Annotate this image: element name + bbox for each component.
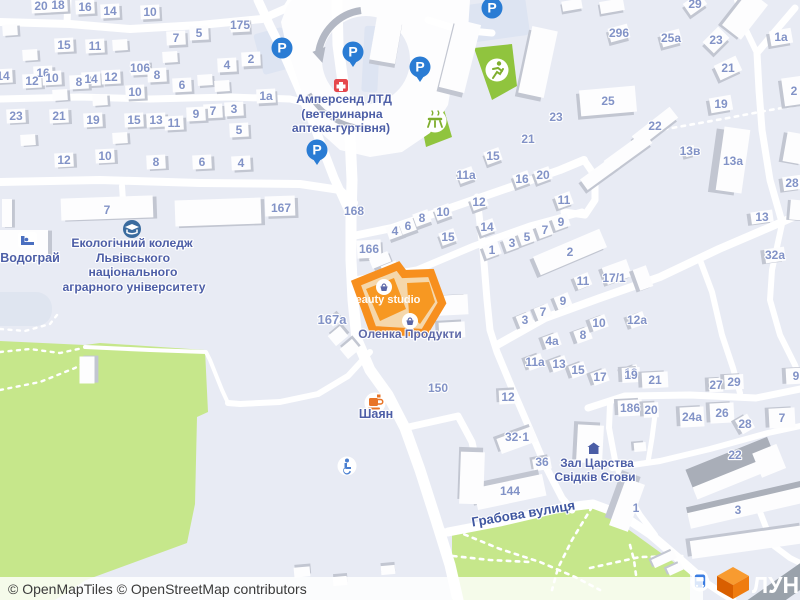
svg-text:15: 15 bbox=[571, 363, 585, 377]
svg-text:4: 4 bbox=[224, 58, 231, 72]
svg-text:14: 14 bbox=[480, 220, 494, 234]
svg-text:1: 1 bbox=[633, 501, 640, 515]
svg-text:10: 10 bbox=[128, 85, 142, 99]
svg-text:2: 2 bbox=[791, 84, 798, 98]
svg-text:3: 3 bbox=[522, 313, 529, 327]
svg-text:6: 6 bbox=[405, 219, 412, 233]
svg-text:7: 7 bbox=[104, 203, 111, 217]
svg-text:3: 3 bbox=[509, 236, 516, 250]
svg-text:19: 19 bbox=[714, 97, 728, 111]
svg-text:5: 5 bbox=[524, 230, 531, 244]
svg-text:15: 15 bbox=[127, 113, 141, 127]
svg-text:11a: 11a bbox=[525, 355, 545, 369]
svg-text:32·1: 32·1 bbox=[505, 430, 529, 444]
svg-text:32a: 32a bbox=[765, 248, 785, 262]
svg-text:106: 106 bbox=[130, 61, 150, 75]
svg-text:7: 7 bbox=[210, 104, 217, 118]
svg-text:10: 10 bbox=[143, 5, 157, 19]
svg-text:168: 168 bbox=[344, 204, 364, 218]
svg-text:14: 14 bbox=[84, 72, 98, 86]
svg-text:150: 150 bbox=[428, 381, 448, 395]
svg-text:Свідків Єгови: Свідків Єгови bbox=[554, 470, 635, 484]
svg-text:Оленка Продукти: Оленка Продукти bbox=[358, 327, 461, 341]
svg-text:7: 7 bbox=[779, 411, 786, 425]
svg-text:4a: 4a bbox=[545, 334, 559, 348]
svg-text:9: 9 bbox=[558, 215, 565, 229]
svg-text:28: 28 bbox=[785, 176, 799, 190]
svg-text:8: 8 bbox=[153, 155, 160, 169]
svg-text:11: 11 bbox=[577, 274, 590, 288]
svg-text:12: 12 bbox=[501, 390, 515, 404]
svg-text:20: 20 bbox=[644, 403, 658, 417]
svg-text:P: P bbox=[487, 0, 496, 16]
svg-text:Водограй: Водограй bbox=[0, 251, 60, 265]
svg-text:11a: 11a bbox=[456, 168, 476, 182]
svg-text:6: 6 bbox=[199, 155, 206, 169]
svg-text:21: 21 bbox=[52, 109, 66, 123]
svg-text:8: 8 bbox=[419, 211, 426, 225]
svg-text:(ветеринарна: (ветеринарна bbox=[301, 107, 383, 121]
svg-text:29: 29 bbox=[727, 375, 741, 389]
svg-text:6: 6 bbox=[179, 78, 186, 92]
svg-text:P: P bbox=[415, 59, 424, 75]
svg-text:21: 21 bbox=[648, 373, 662, 387]
svg-text:15: 15 bbox=[441, 230, 455, 244]
svg-text:14: 14 bbox=[103, 4, 117, 18]
svg-text:14: 14 bbox=[0, 69, 10, 83]
svg-text:167a: 167a bbox=[318, 312, 348, 327]
svg-text:12: 12 bbox=[57, 153, 71, 167]
svg-text:1: 1 bbox=[489, 243, 496, 257]
svg-text:18: 18 bbox=[51, 0, 65, 12]
svg-text:13a: 13a bbox=[723, 154, 743, 168]
svg-text:144: 144 bbox=[500, 484, 520, 498]
svg-text:175: 175 bbox=[230, 18, 250, 32]
svg-text:10: 10 bbox=[436, 205, 450, 219]
svg-text:21: 21 bbox=[721, 61, 735, 75]
svg-text:17/1: 17/1 bbox=[602, 271, 626, 285]
svg-text:© OpenMapTiles © OpenStreetMap: © OpenMapTiles © OpenStreetMap contribut… bbox=[8, 581, 307, 597]
svg-text:1a: 1a bbox=[774, 30, 788, 44]
svg-text:Шаян: Шаян bbox=[359, 407, 393, 421]
svg-text:Амперсенд ЛТД: Амперсенд ЛТД bbox=[296, 92, 392, 106]
svg-text:P: P bbox=[348, 44, 357, 60]
svg-text:25a: 25a bbox=[661, 31, 681, 45]
svg-text:15: 15 bbox=[57, 38, 71, 52]
svg-text:167: 167 bbox=[271, 201, 291, 215]
svg-text:2: 2 bbox=[248, 52, 255, 66]
svg-text:166: 166 bbox=[359, 242, 379, 256]
svg-text:5: 5 bbox=[196, 26, 203, 40]
svg-text:20: 20 bbox=[536, 168, 550, 182]
svg-text:17: 17 bbox=[593, 370, 607, 384]
svg-text:15: 15 bbox=[486, 149, 500, 163]
svg-text:22: 22 bbox=[648, 119, 662, 133]
svg-text:Екологічний коледж: Екологічний коледж bbox=[71, 236, 193, 250]
svg-text:12: 12 bbox=[472, 195, 486, 209]
svg-text:36: 36 bbox=[535, 455, 549, 469]
svg-text:9: 9 bbox=[193, 107, 200, 121]
svg-text:3: 3 bbox=[231, 102, 238, 116]
svg-text:29: 29 bbox=[688, 0, 702, 11]
svg-text:186: 186 bbox=[620, 401, 640, 415]
svg-text:Львівського: Львівського bbox=[96, 251, 170, 265]
svg-text:7: 7 bbox=[542, 223, 549, 237]
svg-text:25: 25 bbox=[601, 94, 615, 108]
svg-text:26: 26 bbox=[715, 406, 729, 420]
svg-text:7: 7 bbox=[173, 31, 180, 45]
svg-text:8: 8 bbox=[76, 75, 83, 89]
svg-text:23: 23 bbox=[549, 110, 563, 124]
svg-text:24a: 24a bbox=[682, 410, 702, 424]
svg-text:Beauty studio: Beauty studio bbox=[348, 294, 421, 306]
svg-text:11: 11 bbox=[168, 116, 181, 130]
svg-text:4: 4 bbox=[392, 224, 399, 238]
svg-text:28: 28 bbox=[738, 417, 752, 431]
svg-text:12: 12 bbox=[104, 70, 118, 84]
svg-text:13: 13 bbox=[755, 210, 769, 224]
svg-text:27: 27 bbox=[709, 378, 723, 392]
svg-text:національного: національного bbox=[88, 265, 177, 279]
svg-text:23: 23 bbox=[709, 33, 723, 47]
svg-text:12: 12 bbox=[25, 74, 39, 88]
svg-text:3: 3 bbox=[735, 503, 742, 517]
svg-text:2: 2 bbox=[567, 245, 574, 259]
svg-text:19: 19 bbox=[624, 368, 638, 382]
svg-text:1a: 1a bbox=[259, 89, 273, 103]
svg-text:296: 296 bbox=[609, 26, 629, 40]
svg-text:9: 9 bbox=[793, 369, 800, 383]
svg-text:8: 8 bbox=[154, 68, 161, 82]
svg-text:13: 13 bbox=[149, 113, 163, 127]
svg-text:8: 8 bbox=[580, 328, 587, 342]
svg-text:Зал Царства: Зал Царства bbox=[560, 456, 634, 470]
svg-text:11: 11 bbox=[558, 193, 571, 207]
svg-text:21: 21 bbox=[521, 132, 535, 146]
svg-text:11: 11 bbox=[89, 39, 102, 53]
svg-text:4: 4 bbox=[238, 156, 245, 170]
svg-text:P: P bbox=[312, 142, 321, 158]
svg-text:12a: 12a bbox=[627, 313, 647, 327]
svg-text:10: 10 bbox=[45, 71, 59, 85]
svg-text:20: 20 bbox=[34, 0, 48, 13]
svg-text:ЛУН: ЛУН bbox=[752, 572, 799, 598]
svg-text:10: 10 bbox=[98, 149, 112, 163]
svg-text:19: 19 bbox=[86, 113, 100, 127]
svg-text:аптека-гуртівня): аптека-гуртівня) bbox=[292, 121, 390, 135]
svg-text:7: 7 bbox=[540, 305, 547, 319]
svg-text:16: 16 bbox=[515, 172, 529, 186]
svg-text:аграрного університету: аграрного університету bbox=[62, 280, 205, 294]
svg-text:22: 22 bbox=[728, 448, 742, 462]
svg-text:P: P bbox=[277, 40, 286, 56]
svg-text:10: 10 bbox=[592, 316, 606, 330]
svg-text:5: 5 bbox=[236, 123, 243, 137]
svg-text:13: 13 bbox=[552, 357, 566, 371]
svg-text:16: 16 bbox=[78, 0, 92, 14]
svg-text:23: 23 bbox=[9, 109, 23, 123]
svg-text:9: 9 bbox=[560, 294, 567, 308]
svg-text:13в: 13в bbox=[680, 144, 701, 158]
